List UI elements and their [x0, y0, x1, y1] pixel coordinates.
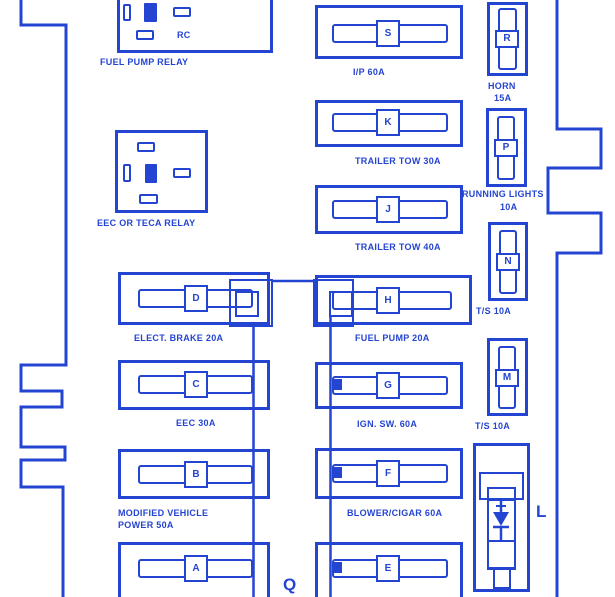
- fuse-e: E: [315, 542, 463, 597]
- fuse-g-letter: G: [376, 372, 400, 399]
- fuse-r-label-line2: 15A: [494, 93, 511, 103]
- fuse-r-label-line1: HORN: [488, 81, 516, 91]
- fuse-c: C: [118, 360, 270, 410]
- fuse-f-label: BLOWER/CIGAR 60A: [347, 508, 442, 518]
- fuse-a-letter: A: [184, 555, 208, 582]
- fuse-b-letter: B: [184, 461, 208, 488]
- fuse-f-letter: F: [376, 460, 400, 487]
- fuse-d-connector-contact: [235, 291, 259, 317]
- fuse-n-letter: N: [496, 253, 520, 271]
- fuse-m-letter: M: [495, 369, 519, 387]
- fuse-g-label: IGN. SW. 60A: [357, 419, 417, 429]
- fuse-j-label: TRAILER TOW 40A: [355, 242, 441, 252]
- fuse-r-letter: R: [495, 30, 519, 48]
- relay-code-label: RC: [177, 30, 191, 40]
- relay-pin-slot-icon: [173, 7, 191, 17]
- fuse-s: S: [315, 5, 463, 59]
- fuse-e-letter: E: [376, 555, 400, 582]
- relay-pin-slot-icon: [173, 168, 191, 178]
- panel-outline-right: [548, 0, 601, 597]
- fuse-n: N: [488, 222, 528, 301]
- relay-pin-slot-icon: [137, 142, 155, 152]
- fuse-g-contact-icon: [334, 379, 342, 390]
- fuse-h-connector-contact: [329, 291, 353, 317]
- fuse-f-contact-icon: [334, 467, 342, 478]
- fuse-p-label-line1: RUNNING LIGHTS: [462, 189, 544, 199]
- connector-q-letter: Q: [283, 576, 296, 593]
- module-l-letter: L: [536, 503, 546, 520]
- fuse-s-label: I/P 60A: [353, 67, 385, 77]
- fuse-g: G: [315, 362, 463, 409]
- fuse-e-contact-icon: [334, 562, 342, 573]
- relay-pin-slot-icon: [139, 194, 158, 204]
- fuse-m-label: T/S 10A: [475, 421, 510, 431]
- panel-outline-left: [21, 0, 66, 597]
- relay-pin-slot-icon: [136, 30, 154, 40]
- fuse-b-label-line2: POWER 50A: [118, 520, 174, 530]
- fuse-s-letter: S: [376, 20, 400, 47]
- fuse-h-label: FUEL PUMP 20A: [355, 333, 430, 343]
- fuse-p-label-line2: 10A: [500, 202, 517, 212]
- fuse-d-letter: D: [184, 285, 208, 312]
- fuse-b: B: [118, 449, 270, 499]
- relay-pin-filled-icon: [144, 3, 157, 22]
- module-l-stub: [493, 568, 511, 589]
- module-l-base: [487, 540, 516, 569]
- fuel-pump-relay: [117, 0, 273, 53]
- fuse-j: J: [315, 185, 463, 234]
- fuse-m: M: [487, 338, 528, 416]
- fuse-k-letter: K: [376, 109, 400, 136]
- fuse-box-diagram: RC FUEL PUMP RELAY EEC OR TECA RELAY D E…: [0, 0, 615, 597]
- fuse-n-label: T/S 10A: [476, 306, 511, 316]
- relay-pin-slot-icon: [123, 4, 131, 21]
- relay-pin-slot-icon: [123, 164, 131, 182]
- fuse-k-label: TRAILER TOW 30A: [355, 156, 441, 166]
- fuse-c-letter: C: [184, 371, 208, 398]
- fuse-j-letter: J: [376, 196, 400, 223]
- fuse-h-letter: H: [376, 287, 400, 314]
- fuse-p: P: [486, 108, 527, 187]
- fuse-p-letter: P: [494, 139, 518, 157]
- fuse-f: F: [315, 448, 463, 499]
- fuse-b-label-line1: MODIFIED VEHICLE: [118, 508, 208, 518]
- fuse-d-label: ELECT. BRAKE 20A: [134, 333, 223, 343]
- fuse-a: A: [118, 542, 270, 597]
- eec-relay-label: EEC OR TECA RELAY: [97, 218, 195, 228]
- fuel-pump-relay-label: FUEL PUMP RELAY: [100, 57, 188, 67]
- fuse-c-label: EEC 30A: [176, 418, 216, 428]
- fuse-k: K: [315, 100, 463, 147]
- fuse-r: R: [487, 2, 528, 76]
- relay-pin-filled-icon: [145, 164, 157, 183]
